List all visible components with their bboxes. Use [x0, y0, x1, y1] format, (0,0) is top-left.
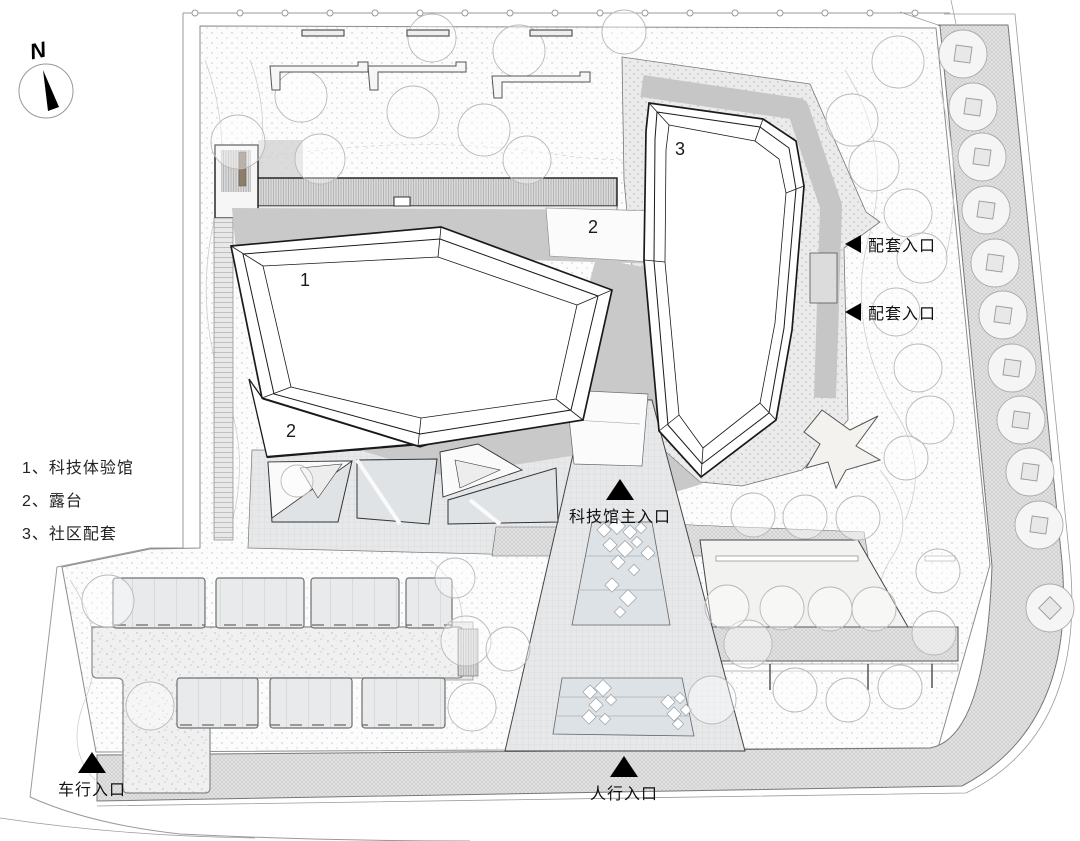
retaining-wall-hatch [214, 218, 233, 540]
legend-num-2: 2、 [22, 493, 49, 510]
building-number-hall: 1 [300, 270, 310, 291]
service-entrance-2-label: 配套入口 [868, 300, 936, 324]
podium-roof [546, 208, 658, 262]
legend-num-1: 1、 [22, 460, 49, 477]
legend-item-3: 3、社区配套 [22, 518, 134, 551]
legend-item-2: 2、露台 [22, 485, 134, 518]
site-plan-canvas: N 1、科技体验馆 2、露台 3、社区配套 1 2 2 3 配套入口 配套入口 … [0, 0, 1080, 841]
north-arrow: N [10, 38, 90, 128]
pedestrian-entrance-label: 人行入口 [590, 780, 658, 804]
north-label: N [27, 37, 48, 66]
vehicle-entrance: 车行入口 [58, 752, 126, 800]
legend-label-1: 科技体验馆 [49, 460, 134, 477]
service-entrance-2: 配套入口 [845, 300, 936, 324]
pedestrian-entrance-arrow-icon [610, 756, 638, 777]
legend-item-1: 1、科技体验馆 [22, 452, 134, 485]
service-entrance-1: 配套入口 [845, 232, 936, 256]
vehicle-entrance-label: 车行入口 [58, 776, 126, 800]
legend-num-3: 3、 [22, 526, 49, 543]
water-feature-lower [553, 678, 694, 736]
building-number-terrace-upper: 2 [588, 217, 598, 238]
pedestrian-entrance: 人行入口 [590, 756, 658, 804]
bench-long [716, 556, 858, 561]
building-number-community: 3 [675, 139, 685, 160]
service-entrance-1-arrow-icon [845, 235, 861, 253]
legend: 1、科技体验馆 2、露台 3、社区配套 [22, 452, 134, 551]
site-plan-drawing [0, 0, 1080, 841]
vehicle-entrance-arrow-icon [78, 752, 106, 773]
building-number-terrace-lower: 2 [286, 421, 296, 442]
service-entrance-2-arrow-icon [845, 303, 861, 321]
service-dock [810, 253, 837, 303]
service-entrance-1-label: 配套入口 [868, 232, 936, 256]
main-entrance-arrow-icon [606, 479, 634, 500]
legend-label-2: 露台 [49, 493, 83, 510]
main-entrance-label: 科技馆主入口 [569, 503, 671, 527]
main-entrance: 科技馆主入口 [569, 479, 671, 527]
legend-label-3: 社区配套 [49, 526, 117, 543]
